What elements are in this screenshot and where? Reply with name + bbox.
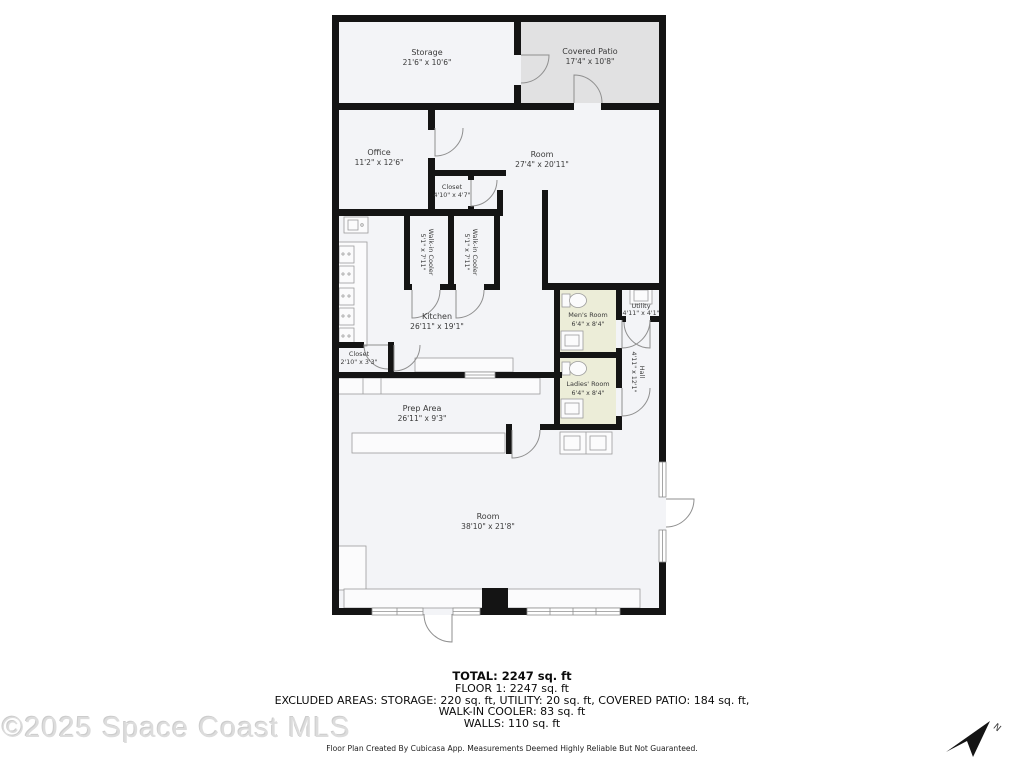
svg-text:27'4" x 20'11": 27'4" x 20'11" bbox=[515, 160, 569, 169]
svg-text:26'11" x 9'3": 26'11" x 9'3" bbox=[398, 414, 447, 423]
svg-text:Utility: Utility bbox=[631, 302, 650, 310]
door-exterior-right bbox=[666, 499, 694, 527]
door-exterior-bottom bbox=[424, 614, 452, 642]
svg-text:Room: Room bbox=[531, 150, 554, 159]
svg-text:Prep Area: Prep Area bbox=[403, 404, 442, 413]
svg-text:5'1" x 7'11": 5'1" x 7'11" bbox=[463, 233, 470, 270]
svg-text:4'11" x 12'1": 4'11" x 12'1" bbox=[630, 351, 637, 392]
svg-text:21'6" x 10'6": 21'6" x 10'6" bbox=[403, 58, 452, 67]
svg-text:4'10" x 4'7": 4'10" x 4'7" bbox=[433, 192, 470, 199]
mens-toilet bbox=[562, 294, 570, 307]
room-label-prep-area: Prep Area 26'11" x 9'3" bbox=[398, 404, 447, 423]
svg-text:6'4" x 8'4": 6'4" x 8'4" bbox=[571, 321, 604, 328]
svg-text:26'11" x 19'1": 26'11" x 19'1" bbox=[410, 322, 464, 331]
svg-text:Men's Room: Men's Room bbox=[568, 311, 607, 319]
svg-text:Ladies' Room: Ladies' Room bbox=[566, 380, 609, 388]
svg-text:Walk-in Cooler: Walk-in Cooler bbox=[427, 229, 435, 276]
column bbox=[482, 588, 508, 615]
floor-plan-page: Storage 21'6" x 10'6" Covered Patio 17'4… bbox=[0, 0, 1024, 768]
floor-plan-drawing: Storage 21'6" x 10'6" Covered Patio 17'4… bbox=[0, 0, 1024, 768]
svg-text:6'4" x 8'4": 6'4" x 8'4" bbox=[571, 390, 604, 397]
ladies-toilet bbox=[562, 362, 570, 375]
svg-text:11'2" x 12'6": 11'2" x 12'6" bbox=[355, 158, 404, 167]
svg-text:38'10" x 21'8": 38'10" x 21'8" bbox=[461, 522, 515, 531]
svg-text:Hall: Hall bbox=[638, 366, 646, 379]
svg-text:Closet: Closet bbox=[442, 183, 463, 191]
svg-text:5'1" x 7'11": 5'1" x 7'11" bbox=[419, 233, 426, 270]
summary-floor1: FLOOR 1: 2247 sq. ft bbox=[0, 683, 1024, 695]
svg-text:Covered Patio: Covered Patio bbox=[562, 47, 618, 56]
svg-text:17'4" x 10'8": 17'4" x 10'8" bbox=[566, 57, 615, 66]
svg-text:2'10" x 3'3": 2'10" x 3'3" bbox=[340, 359, 377, 366]
svg-text:Closet: Closet bbox=[349, 350, 370, 358]
svg-text:Kitchen: Kitchen bbox=[422, 312, 452, 321]
svg-text:Storage: Storage bbox=[411, 48, 442, 57]
watermark: ©2025 Space Coast MLS bbox=[2, 712, 351, 745]
svg-text:Room: Room bbox=[477, 512, 500, 521]
svg-text:4'11" x 4'1": 4'11" x 4'1" bbox=[622, 310, 659, 317]
svg-text:Walk-in Cooler: Walk-in Cooler bbox=[471, 229, 479, 276]
room-label-covered-patio: Covered Patio 17'4" x 10'8" bbox=[562, 47, 618, 66]
svg-text:Office: Office bbox=[367, 148, 390, 157]
